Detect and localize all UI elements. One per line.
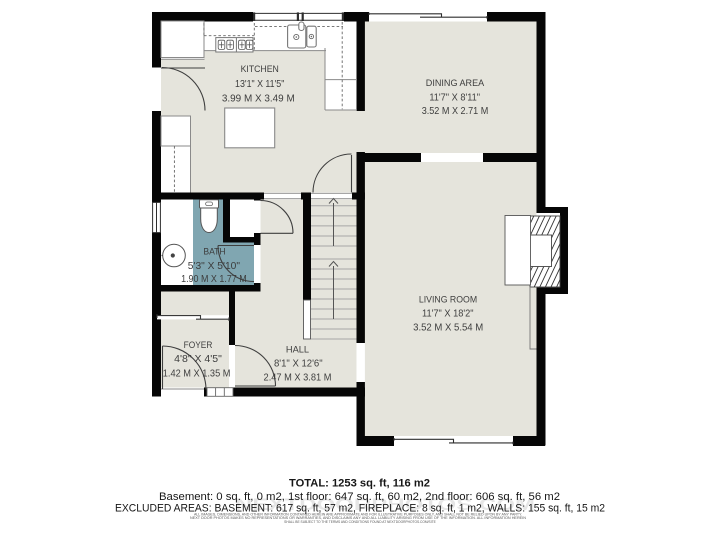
svg-text:BATH: BATH bbox=[203, 246, 225, 256]
svg-text:DINING AREA: DINING AREA bbox=[426, 78, 485, 88]
svg-text:1.42 M X 1.35 M: 1.42 M X 1.35 M bbox=[163, 369, 231, 380]
svg-text:2.47 M X 3.81 M: 2.47 M X 3.81 M bbox=[264, 372, 332, 383]
svg-text:3.52 M X 5.54 M: 3.52 M X 5.54 M bbox=[413, 322, 483, 333]
svg-text:TOTAL: 1253 sq. ft, 116 m2: TOTAL: 1253 sq. ft, 116 m2 bbox=[289, 478, 430, 490]
svg-text:Basement: 0 sq. ft, 0 m2, 1st: Basement: 0 sq. ft, 0 m2, 1st floor: 647… bbox=[159, 491, 560, 503]
svg-text:13'1" X 11'5": 13'1" X 11'5" bbox=[235, 79, 285, 90]
svg-text:4'8" X 4'5": 4'8" X 4'5" bbox=[174, 354, 222, 365]
svg-text:5'3" X 5'10": 5'3" X 5'10" bbox=[188, 261, 241, 272]
svg-text:11'7" X 8'11": 11'7" X 8'11" bbox=[429, 93, 480, 104]
svg-text:KITCHEN: KITCHEN bbox=[241, 64, 279, 74]
svg-text:FOYER: FOYER bbox=[184, 340, 213, 350]
svg-text:LIVING ROOM: LIVING ROOM bbox=[419, 295, 477, 305]
svg-text:3.52 M X 2.71 M: 3.52 M X 2.71 M bbox=[422, 106, 489, 117]
svg-text:3.99 M X 3.49 M: 3.99 M X 3.49 M bbox=[222, 94, 295, 105]
svg-text:8'1" X 12'6": 8'1" X 12'6" bbox=[274, 359, 323, 370]
svg-text:SHALL BE SUBJECT TO THE TERMS: SHALL BE SUBJECT TO THE TERMS AND CONDIT… bbox=[284, 520, 436, 524]
svg-text:11'7" X 18'2": 11'7" X 18'2" bbox=[422, 309, 474, 320]
svg-text:HALL: HALL bbox=[286, 345, 309, 355]
svg-text:1.90 M X 1.77 M: 1.90 M X 1.77 M bbox=[181, 274, 247, 285]
